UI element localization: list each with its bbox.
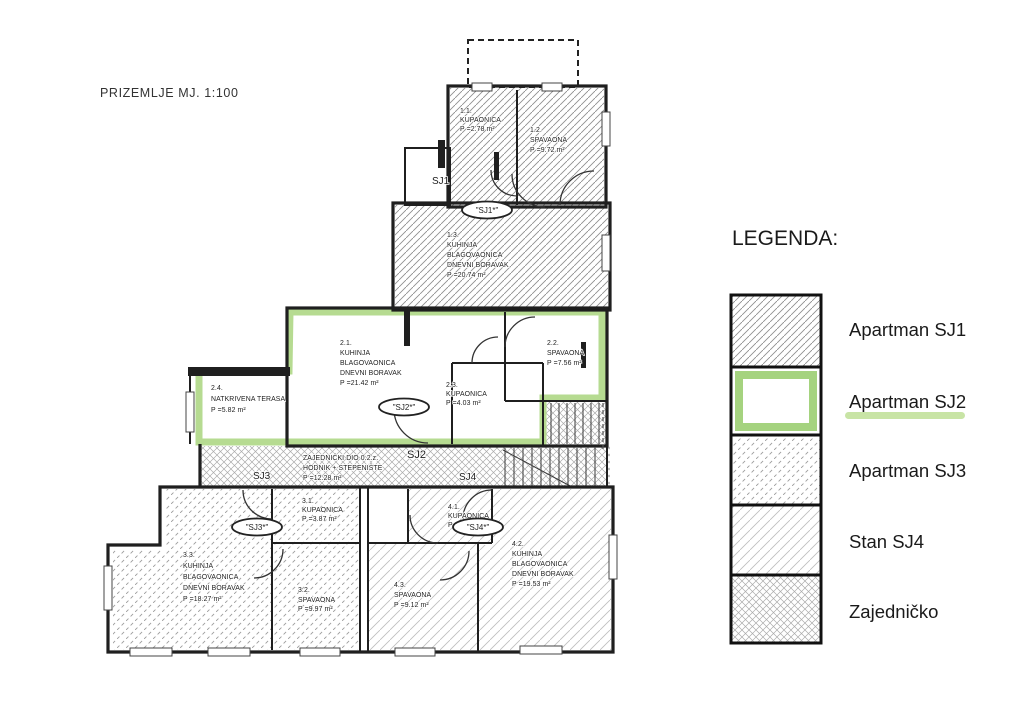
room-number: 3.3. (183, 552, 195, 559)
stamp-sj1: "SJ1*" (476, 206, 499, 215)
unit-tag-sj2: SJ2 (407, 449, 426, 461)
room-name: NATKRIVENA TERASA (211, 396, 286, 403)
room-area: P =20.74 m² (447, 272, 486, 279)
room-number: 4.3. (394, 582, 406, 589)
room-number: 4.2. (512, 541, 524, 548)
room-name: KUPAONICA (302, 507, 343, 514)
room-number: 1.1. (460, 108, 472, 115)
floorplan-page: PRIZEMLJE MJ. 1:100 1.1. KUPAONICA P =2.… (0, 0, 1024, 719)
room-name: BLAGOVAONICA (512, 561, 568, 568)
room-area: P =5.82 m² (211, 407, 246, 414)
unit-tag-sj1: SJ1 (432, 176, 450, 187)
room-name: BLAGOVAONICA (447, 252, 503, 259)
room-area: P =12.28 m² (303, 475, 342, 482)
room-name: KUPAONICA (460, 117, 501, 124)
room-name: HODNIK + STEPENIŠTE (303, 463, 383, 472)
room-area: P =21.42 m² (340, 380, 379, 387)
room-number: 2.3. (446, 382, 458, 389)
legend-swatch-sj3 (731, 435, 821, 505)
room-number: 3.2. (298, 587, 310, 594)
room-number: 3.1. (302, 498, 314, 505)
legend-label-zajednicko: Zajedničko (849, 601, 938, 622)
room-name: SPAVAONA (298, 597, 335, 604)
room-number: 1.3. (447, 232, 459, 239)
room-area: P =9.72 m² (530, 147, 565, 154)
stamp-sj4: "SJ4*" (467, 523, 490, 532)
room-area: P =19.53 m² (512, 581, 551, 588)
room-area: P =9.12 m² (394, 602, 429, 609)
room-name: SPAVAONA (394, 592, 431, 599)
room-name: BLAGOVAONICA (340, 360, 396, 367)
room-name: ZAJEDNIČKI DIO 0.2.z. (303, 453, 378, 462)
room-area: P =7.56 m² (547, 360, 582, 367)
legend-swatch-sj4 (731, 505, 821, 575)
room-name: DNEVNI BORAVAK (183, 585, 245, 592)
room-area: P =9.97 m² (298, 606, 333, 613)
unit-tag-sj3: SJ3 (253, 471, 271, 482)
room-number: 2.2. (547, 340, 559, 347)
legend-swatch-zajednicko (731, 575, 821, 643)
room-area: P =2.78 m² (460, 126, 495, 133)
room-name: KUHINJA (340, 350, 370, 357)
legend-label-sj3: Apartman SJ3 (849, 460, 966, 481)
stamp-sj3: "SJ3*" (246, 523, 269, 532)
terrace-top-wall (188, 367, 290, 376)
legend-heading: LEGENDA: (732, 227, 838, 250)
room-number: 2.4. (211, 385, 223, 392)
stamp-sj2: "SJ2*" (393, 403, 416, 412)
legend-label-sj1: Apartman SJ1 (849, 319, 966, 340)
room-name: BLAGOVAONICA (183, 574, 239, 581)
room-name: KUPAONICA (446, 391, 487, 398)
legend-swatch-sj2-green (739, 375, 813, 427)
room-area: P =18.27 m² (183, 596, 222, 603)
room-number: 1.2. (530, 127, 542, 134)
floorplan-svg: PRIZEMLJE MJ. 1:100 1.1. KUPAONICA P =2.… (0, 0, 1024, 719)
legend-swatch-sj1 (731, 295, 821, 367)
room-area: P =3.87 m² (302, 516, 337, 523)
legend: LEGENDA: Apartman SJ1 Apartman SJ2 Apart… (731, 227, 966, 643)
room-name: DNEVNI BORAVAK (340, 370, 402, 377)
legend-sj2-underline (845, 412, 965, 419)
room-name: SPAVAONA (530, 137, 567, 144)
plan-title: PRIZEMLJE MJ. 1:100 (100, 86, 239, 100)
room-name: KUHINJA (447, 242, 477, 249)
room-name: SPAVAONA (547, 350, 584, 357)
legend-label-sj2: Apartman SJ2 (849, 391, 966, 412)
room-name: DNEVNI BORAVAK (512, 571, 574, 578)
dashed-overhang-outline (468, 40, 578, 87)
legend-label-sj4: Stan SJ4 (849, 531, 924, 552)
room-number: 4.1. (448, 504, 460, 511)
room-number: 2.1. (340, 340, 352, 347)
room-area: P =4.03 m² (446, 400, 481, 407)
room-name: KUHINJA (183, 563, 213, 570)
unit-tag-sj4: SJ4 (459, 472, 477, 483)
room-name: KUHINJA (512, 551, 542, 558)
room-name: DNEVNI BORAVAK (447, 262, 509, 269)
